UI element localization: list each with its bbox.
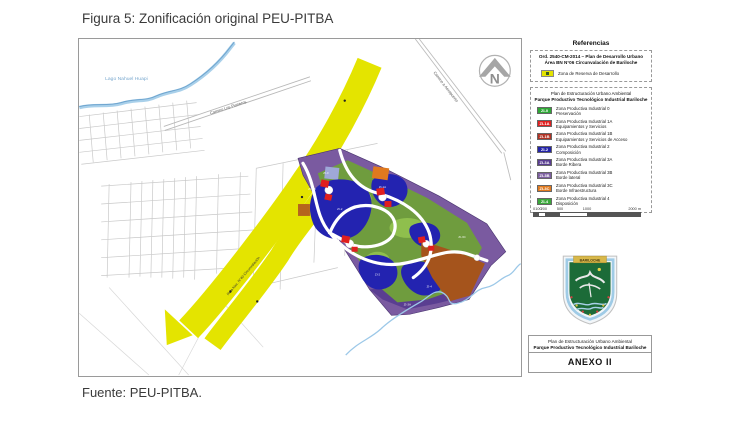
document-page: { "page": { "title": "Figura 5: Zonifica… bbox=[0, 0, 730, 437]
legend-desc2: Disposición bbox=[556, 201, 578, 206]
legend-desc2: Borde lateral bbox=[556, 175, 580, 180]
title-block: BARILOCHE Plan de Estructuración Urbano … bbox=[528, 252, 652, 373]
reserve-swatch bbox=[541, 70, 554, 77]
figure-source: Fuente: PEU-PITBA. bbox=[82, 385, 202, 400]
lake-label: Lago Nahuel Huapi bbox=[105, 76, 148, 82]
legend-swatch: ZI-0 bbox=[537, 107, 552, 114]
legend-desc: Zona Productiva Industrial 3C Borde Infr… bbox=[556, 183, 613, 193]
legend-desc: Zona Productiva Industrial 2 Composición bbox=[556, 144, 610, 154]
legend-row: ZI-3B Zona Productiva Industrial 3B Bord… bbox=[537, 170, 649, 180]
zoning-map: Lago Nahuel Huapi Camino Los Pioneros Ca… bbox=[78, 38, 522, 377]
zone-code-label: ZI-0 bbox=[323, 171, 329, 175]
legend-desc: Zona Productiva Industrial 0 Preservació… bbox=[556, 106, 610, 116]
zone-code-label: ZI-2 bbox=[375, 273, 381, 277]
peu-header2: Parque Productivo Tecnológico Industrial… bbox=[533, 97, 649, 103]
legend-title: Referencias bbox=[530, 40, 652, 47]
shield-banner-label: BARILOCHE bbox=[580, 258, 601, 262]
title-block-line1: Plan de Estructuración Urbano Ambiental bbox=[531, 339, 649, 344]
legend-panel: Referencias Ord. 2540-CM-2014 – Plan de … bbox=[530, 40, 652, 218]
legend-swatch: ZI-1B bbox=[537, 133, 552, 140]
legend-desc: Zona Productiva Industrial 3B Borde late… bbox=[556, 170, 612, 180]
legend-row: ZI-1B Zona Productiva Industrial 1B Equi… bbox=[537, 131, 649, 141]
title-block-lines: Plan de Estructuración Urbano Ambiental … bbox=[528, 335, 652, 352]
scale-tick-labels: 010020050010002000 m bbox=[533, 207, 641, 212]
zone-code-label: ZI-3C bbox=[458, 235, 466, 239]
legend-row: ZI-2 Zona Productiva Industrial 2 Compos… bbox=[537, 144, 649, 154]
scale-bar: 010020050010002000 m bbox=[533, 207, 641, 217]
figure-title: Figura 5: Zonificación original PEU-PITB… bbox=[82, 11, 333, 26]
legend-swatch: ZI-3B bbox=[537, 172, 552, 179]
north-compass-icon: N bbox=[479, 55, 511, 86]
legend-swatch: ZI-1A bbox=[537, 120, 552, 127]
zoning-area: ZI-0ZI-2ZI-1AZI-3BZI-2ZI-4ZI-3AZI-3C bbox=[298, 148, 506, 315]
zone-code-label: ZI-2 bbox=[337, 207, 343, 211]
legend-swatch: ZI-4 bbox=[537, 198, 552, 205]
legend-swatch: ZI-3C bbox=[537, 185, 552, 192]
road-pioneros-label: Camino Los Pioneros bbox=[209, 99, 247, 115]
pdu-line2: Área BN N°06 Circunvalación de Bariloche bbox=[533, 60, 649, 66]
legend-swatch: ZI-3A bbox=[537, 159, 552, 166]
legend-desc2: Borde Ribera bbox=[556, 162, 581, 167]
legend-swatch: ZI-2 bbox=[537, 146, 552, 153]
legend-desc: Zona Productiva Industrial 4 Disposición bbox=[556, 196, 610, 206]
lake-shoreline: Lago Nahuel Huapi bbox=[79, 42, 234, 108]
legend-desc2: Equipamientos y Servicios de Acceso bbox=[556, 137, 627, 142]
legend-desc: Zona Productiva Industrial 3A Borde Ribe… bbox=[556, 157, 612, 167]
legend-desc2: Borde Infraestructura bbox=[556, 188, 596, 193]
zone-code-label: ZI-3A bbox=[404, 302, 411, 306]
legend-row: ZI-0 Zona Productiva Industrial 0 Preser… bbox=[537, 106, 649, 116]
legend-desc2: Preservación bbox=[556, 111, 581, 116]
reserve-legend-row: Zona de Reserva de Desarrollo bbox=[541, 70, 649, 77]
bariloche-shield-icon: BARILOCHE bbox=[559, 252, 621, 326]
annex-label: ANEXO II bbox=[528, 352, 652, 373]
zone-code-label: ZI-4 bbox=[427, 285, 433, 289]
legend-row: ZI-1A Zona Productiva Industrial 1A Equi… bbox=[537, 119, 649, 129]
legend-desc: Zona Productiva Industrial 1B Equipamien… bbox=[556, 131, 627, 141]
zoning-legend-rows: ZI-0 Zona Productiva Industrial 0 Preser… bbox=[533, 106, 649, 207]
legend-pdu-box: Ord. 2540-CM-2014 – Plan de Desarrollo U… bbox=[530, 50, 652, 82]
legend-row: ZI-3C Zona Productiva Industrial 3C Bord… bbox=[537, 183, 649, 193]
legend-desc: Zona Productiva Industrial 1A Equipamien… bbox=[556, 119, 612, 129]
legend-row: ZI-3A Zona Productiva Industrial 3A Bord… bbox=[537, 157, 649, 167]
compass-n-label: N bbox=[490, 71, 500, 87]
reserve-label: Zona de Reserva de Desarrollo bbox=[558, 71, 619, 76]
zone-code-label: ZI-3B bbox=[308, 187, 315, 191]
legend-desc2: Composición bbox=[556, 150, 581, 155]
legend-desc2: Equipamientos y Servicios bbox=[556, 124, 606, 129]
zone-code-label: ZI-1A bbox=[379, 185, 386, 189]
legend-peu-box: Plan de Estructuración Urbano Ambiental … bbox=[530, 87, 652, 213]
map-canvas: Lago Nahuel Huapi Camino Los Pioneros Ca… bbox=[79, 39, 521, 376]
title-block-line2: Parque Productivo Tecnológico Industrial… bbox=[531, 345, 649, 350]
legend-row: ZI-4 Zona Productiva Industrial 4 Dispos… bbox=[537, 196, 649, 206]
scale-bar-segments bbox=[533, 212, 641, 217]
